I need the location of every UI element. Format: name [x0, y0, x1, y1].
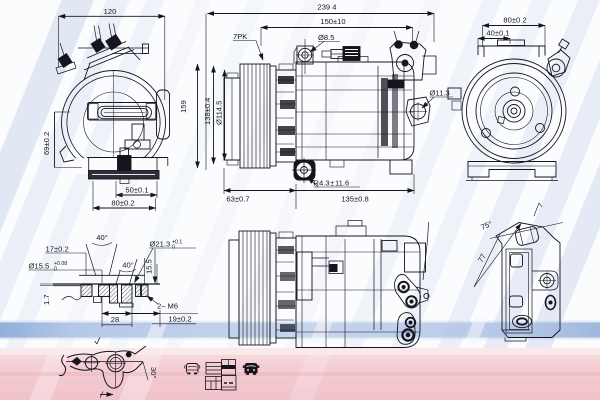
svg-text:80±0.2: 80±0.2 [111, 199, 134, 208]
svg-text:1.7: 1.7 [42, 294, 51, 305]
svg-text:28: 28 [111, 315, 119, 324]
svg-text:19±0.2: 19±0.2 [168, 315, 191, 324]
svg-text:Ø21.3: Ø21.3 [150, 240, 171, 249]
svg-text:0: 0 [54, 267, 57, 273]
svg-text:7PK: 7PK [233, 32, 247, 41]
svg-text:Ø15.5: Ø15.5 [29, 262, 50, 271]
svg-text:69±0.2: 69±0.2 [42, 132, 51, 155]
svg-text:17±0.2: 17±0.2 [46, 245, 69, 254]
svg-text:120: 120 [104, 7, 117, 16]
svg-text:50±0.1: 50±0.1 [125, 186, 148, 195]
svg-text:15.5: 15.5 [145, 259, 154, 274]
svg-text:150±10: 150±10 [320, 17, 345, 26]
svg-text:40±0.1: 40±0.1 [486, 29, 509, 38]
svg-text:Ø114.5: Ø114.5 [215, 101, 224, 125]
svg-text:239 4: 239 4 [317, 3, 336, 12]
svg-text:63±0.7: 63±0.7 [226, 195, 249, 204]
svg-text:30°: 30° [149, 367, 158, 378]
svg-text:0: 0 [172, 245, 175, 251]
svg-text:80±0 2: 80±0 2 [503, 16, 526, 25]
svg-text:Ø11.3: Ø11.3 [430, 89, 450, 98]
svg-text:135±0.8: 135±0.8 [341, 195, 368, 204]
svg-text:R4.3 ± 11.6: R4.3 ± 11.6 [314, 179, 350, 188]
svg-text:40°: 40° [122, 261, 133, 270]
svg-text:159: 159 [179, 100, 188, 113]
svg-text:2– M6: 2– M6 [157, 302, 178, 311]
svg-text:138±0.4: 138±0.4 [203, 98, 212, 125]
svg-text:Ø8.5: Ø8.5 [318, 33, 334, 42]
svg-text:40°: 40° [96, 233, 107, 242]
